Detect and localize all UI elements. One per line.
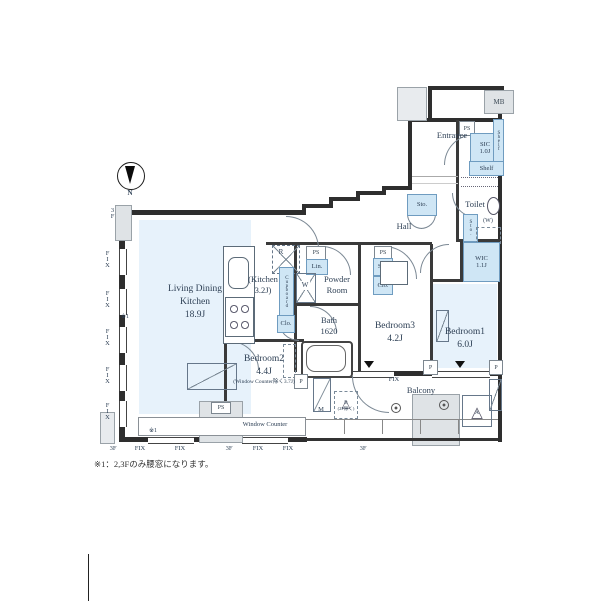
hall-label: Hall (384, 221, 424, 232)
ps-label: PS (313, 250, 320, 256)
bedroom1-label: Bedroom1 6.0J (430, 326, 500, 352)
closet-box-kitchen: Clo. (277, 315, 295, 333)
window-counter-label: Window Counter (228, 421, 302, 430)
note-ref-label: ※1 (146, 427, 160, 435)
fix-label: FIX (130, 445, 150, 454)
fix-label: FIX (101, 246, 111, 272)
fix-label: FIX (170, 445, 190, 454)
sic-label: SIC (480, 141, 490, 148)
shelf-box-vertical: Shelf (493, 119, 504, 163)
shelf-label: Shelf (480, 165, 494, 172)
wall-step (329, 197, 356, 201)
ldk-label: Living Dining Kitchen 18.9J (142, 283, 248, 321)
shelf-box-horizontal: Shelf (469, 161, 504, 176)
balcony-railing-divider (458, 420, 459, 434)
window-left-5 (119, 401, 127, 427)
hatch-b-note: (2F除く) (338, 407, 355, 412)
linen-label: Lin. (312, 263, 323, 270)
kitchen-size: 3.2J) (240, 285, 286, 296)
wic-label: WIC (475, 255, 488, 262)
fix-label: FIX (384, 376, 404, 385)
storage-label: Sto. (417, 201, 427, 208)
balcony-label: Balcony (400, 385, 442, 396)
window-bottom-1 (148, 437, 194, 444)
washer-space-label: (W) (476, 217, 500, 225)
wall-entrance-left (408, 120, 412, 190)
wall-top-ldk (119, 210, 304, 215)
entrance-step-line (412, 183, 458, 184)
bedroom2-label: Bedroom2 4.4J (Window Counter除く3.7J) (226, 353, 302, 386)
bedroom3-counter (380, 261, 408, 285)
pillar-label: P (494, 365, 497, 371)
wall-top-right-stub (428, 86, 432, 120)
window-balcony-2 (432, 371, 490, 378)
meter-box-label: MB (494, 98, 505, 106)
entrance-label: Entrance (428, 130, 476, 141)
bedroom1-name: Bedroom1 (430, 326, 500, 339)
window-left-1 (119, 249, 127, 275)
window-marker-icon (364, 361, 374, 368)
page-edge-line (88, 554, 89, 601)
hatch-a-label: A (475, 411, 479, 417)
compass-needle-icon (125, 166, 135, 184)
fix-label: FIX (101, 324, 111, 350)
powder-label-line1: Powder (314, 274, 360, 285)
storage-box-hall: Sto. (407, 194, 437, 216)
bedroom1-size: 6.0J (430, 339, 500, 352)
bedroom1-door-arc (420, 244, 449, 273)
fix-label: FIX (278, 445, 298, 454)
wall-powder-bath (294, 303, 359, 306)
evacuation-hatch-b: △ B (2F除く) (334, 391, 358, 419)
pillar-p-box: P (489, 360, 503, 375)
faucet-icon (391, 403, 401, 413)
refrigerator-label: R (276, 248, 286, 257)
footnote: ※1：2,3Fのみ腰窓になります。 (94, 459, 314, 470)
washer-label: W (300, 281, 310, 290)
bathtub-inner (306, 345, 346, 372)
bedroom2-note: (Window Counter除く3.7J) (226, 379, 302, 386)
ps-box-mid: PS (306, 246, 326, 260)
sic-size: 1.0J (480, 148, 491, 155)
wall-powder-bedroom3 (358, 244, 361, 372)
floor-label: 3F (220, 445, 238, 454)
floor-label: 3F (104, 445, 122, 454)
window-left-2 (119, 289, 127, 315)
fix-label: FIX (101, 362, 111, 388)
ldk-label-line2: Kitchen (142, 296, 248, 309)
faucet-icon (439, 400, 449, 410)
balcony-railing-divider (420, 420, 421, 434)
bedroom3-name: Bedroom3 (358, 320, 432, 333)
bedroom3-label: Bedroom3 4.2J (358, 320, 432, 346)
floor-plan: N MB PS (0, 0, 606, 601)
bedroom3-size: 4.2J (358, 333, 432, 346)
window-left-3 (119, 327, 127, 353)
floor-label: 3F (354, 445, 372, 454)
pillar-top-left (115, 205, 132, 241)
fix-label: FIX (101, 398, 111, 424)
fix-label: FIX (101, 286, 111, 312)
evacuation-hatch-a: △ A (462, 395, 492, 427)
compass-north-label: N (124, 189, 136, 198)
mirror-label: M (316, 406, 326, 415)
window-left-4 (119, 365, 127, 391)
ps-shaft-label-box: PS (211, 402, 231, 414)
ldk-size: 18.9J (142, 309, 248, 322)
wall-step (302, 204, 329, 208)
ps-label: PS (218, 405, 225, 411)
kitchen-label: (Kitchen 3.2J) (240, 274, 286, 297)
toilet-wall-cabinet (461, 177, 498, 187)
closet-label: Clo. (280, 320, 291, 327)
ldk-label-line1: Living Dining (142, 283, 248, 296)
fix-label: FIX (248, 445, 268, 454)
note-ref-label: ※1 (118, 313, 132, 321)
toilet-label: Toilet (460, 199, 490, 210)
balcony-railing-divider (344, 420, 345, 434)
storage-label: Sto. (468, 220, 474, 236)
pillar-label: P (429, 365, 432, 371)
shelf-label: Shelf (496, 131, 502, 151)
ps-label: PS (380, 250, 387, 256)
wic-size: 1.1J (476, 262, 487, 269)
pillar-p-box: P (423, 360, 438, 375)
wall-step (356, 191, 382, 195)
bath-size: 1620 (306, 326, 352, 337)
corridor-outside-area (397, 87, 427, 121)
window-bottom-2 (242, 437, 288, 444)
balcony-panel (489, 379, 502, 411)
kitchen-label-line1: (Kitchen (240, 274, 286, 285)
meter-box: MB (484, 90, 514, 114)
window-marker-icon (455, 361, 465, 368)
entrance-step-line (412, 176, 458, 177)
bath-name: Bath (306, 315, 352, 326)
floor-label: 3F (106, 203, 116, 223)
bath-label: Bath 1620 (306, 315, 352, 338)
bedroom2-size: 4.4J (226, 366, 302, 379)
powder-label-line2: Room (314, 285, 360, 296)
powder-room-label: Powder Room (314, 274, 360, 297)
balcony-railing-divider (382, 420, 383, 434)
bedroom2-name: Bedroom2 (226, 353, 302, 366)
wic-box: WIC1.1J (463, 242, 500, 282)
